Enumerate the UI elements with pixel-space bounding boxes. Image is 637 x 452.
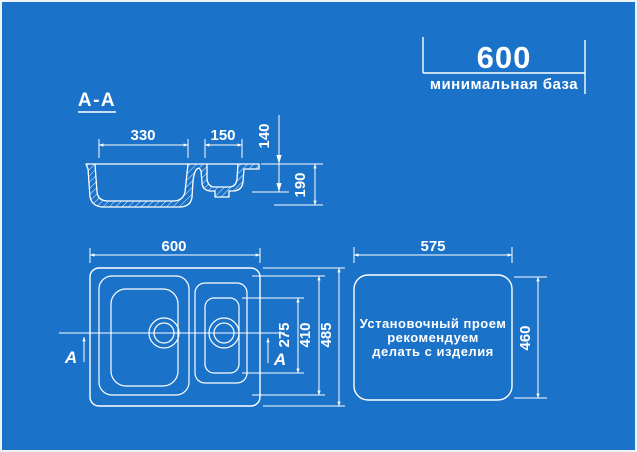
- sink-dimension-drawing: 600 минимальная база А-А 330 150 140 190: [0, 0, 637, 452]
- dim-cutout-height: 460: [517, 325, 534, 350]
- dim-large-bowl-width: 330: [130, 127, 155, 144]
- dim-large-bowl-depth: 190: [292, 172, 309, 197]
- cutout-note-line-2: рекомендуем: [387, 330, 479, 345]
- dim-sink-height: 485: [318, 322, 335, 347]
- dim-cutout-width: 575: [420, 238, 445, 255]
- min-base-banner: 600 минимальная база: [423, 37, 585, 94]
- cutout-note-line-3: делать с изделия: [372, 344, 494, 359]
- section-view-label: А-А: [78, 90, 116, 111]
- cutout-view: 575 460 Установочный проем рекомендуем д…: [354, 238, 547, 400]
- section-view: А-А 330 150 140 190: [78, 90, 323, 207]
- dim-small-bowl-depth: 140: [256, 123, 273, 148]
- sink-cross-section-profile: [86, 164, 259, 207]
- cutout-note-line-1: Установочный проем: [360, 316, 507, 331]
- section-marker-left: А: [64, 348, 77, 367]
- dim-bowl-zone-height: 410: [297, 322, 314, 347]
- min-base-value: 600: [477, 40, 532, 75]
- technical-drawing-svg: 600 минимальная база А-А 330 150 140 190: [2, 2, 637, 452]
- min-base-caption: минимальная база: [430, 76, 578, 93]
- top-view: 600 275 410 485 А А: [59, 238, 345, 406]
- section-marker-right: А: [273, 350, 286, 369]
- dim-small-bowl-length: 275: [276, 322, 293, 347]
- dim-sink-width: 600: [161, 238, 186, 255]
- dim-small-bowl-width: 150: [210, 127, 235, 144]
